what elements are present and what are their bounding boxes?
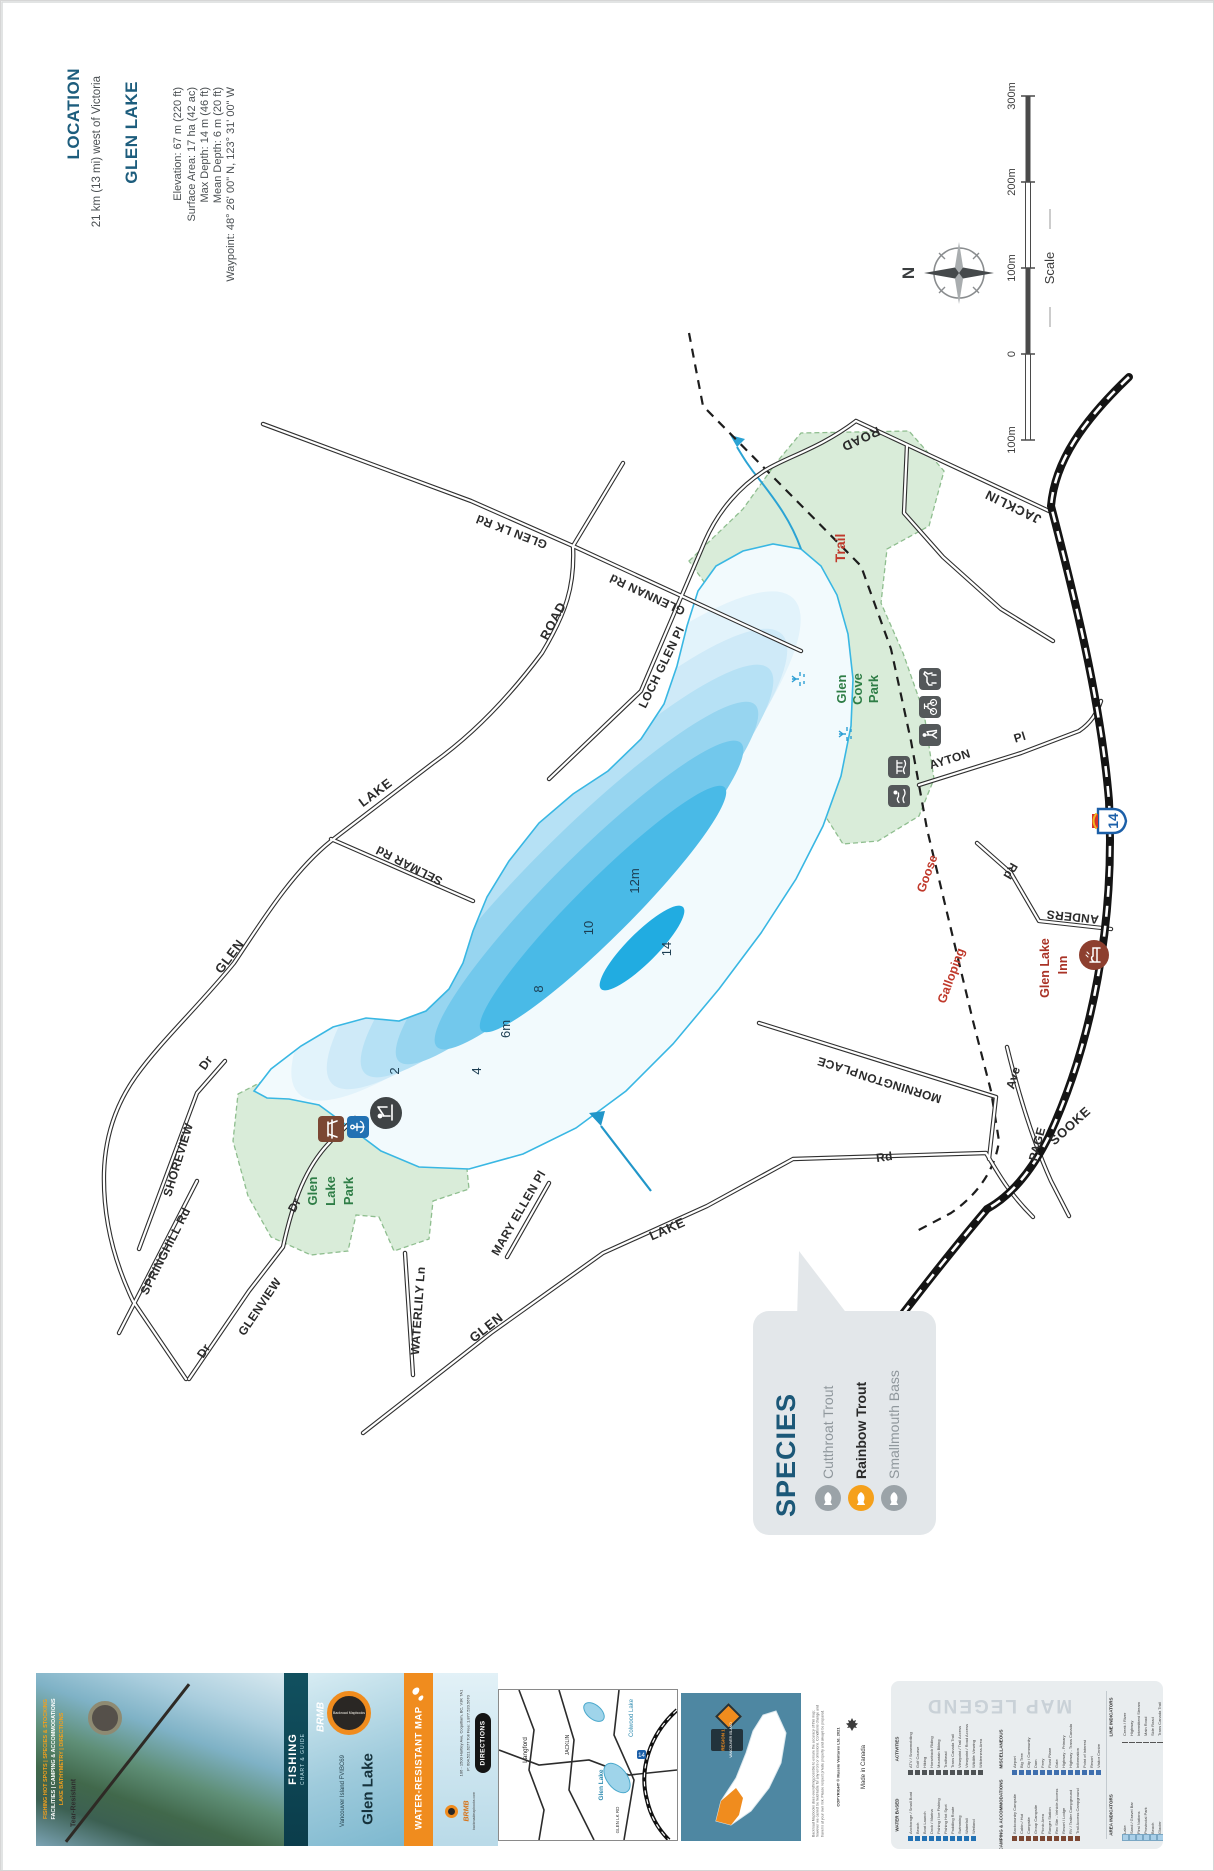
fishing-rod-image	[65, 1683, 190, 1842]
legend-camping-icon	[1047, 1836, 1052, 1841]
directions-tab: DIRECTIONS	[475, 1713, 491, 1773]
legend-item: Mountain Biking	[935, 1723, 942, 1775]
legend-activity-icon	[978, 1770, 983, 1775]
horseback-riding-icon	[919, 668, 941, 690]
legend-misc-icon	[1019, 1770, 1024, 1775]
species-cutthroat: Cutthroat Trout	[820, 1386, 836, 1479]
legend-camping-icon	[1033, 1836, 1038, 1841]
legend-item: Highway	[1128, 1691, 1135, 1743]
legend-misc-icon	[1033, 1770, 1038, 1775]
legend-item: Float Plane	[1046, 1723, 1053, 1775]
inset-colwood-label: Colwood Lake	[629, 1698, 635, 1737]
scale-100mb: 100m	[1006, 426, 1018, 454]
legend-item: Cabin / Hut	[1018, 1789, 1025, 1841]
legend-misc-icon	[1096, 1770, 1101, 1775]
glen-cove-park-label-1: Glen	[834, 674, 849, 703]
fishing-map-page: LOCATION 21 km (13 mi) west of Victoria …	[0, 0, 1214, 1871]
legend-item: Viewpoint / Road Access	[963, 1723, 970, 1775]
depth-14: 14	[659, 942, 674, 956]
legend-item: Swimming	[956, 1789, 963, 1841]
legend-item: Dock / Marina	[928, 1789, 935, 1841]
legend-activity-icon	[964, 1770, 969, 1775]
road-label-rd-s: Rd	[875, 1149, 893, 1165]
stat-elevation: Elevation: 67 m (220 ft)	[172, 87, 184, 201]
inset-glen-lake-label: Glen Lake	[598, 1769, 605, 1800]
legend-item: Hiking	[921, 1723, 928, 1775]
directions-inset-map: 14 Colwood Lake Langford Glen Lake JACKL…	[498, 1689, 678, 1841]
depth-4: 4	[469, 1067, 484, 1074]
road-label-selmar: SELMAR Rd	[374, 843, 445, 888]
legend-camping-icon	[1040, 1836, 1045, 1841]
inset-hwy-number: 14	[638, 1753, 645, 1759]
depth-6m: 6m	[498, 1020, 513, 1038]
legend-item: Resort	[1088, 1723, 1095, 1775]
water-drop-icon	[418, 1694, 425, 1701]
road-label-mary-ellen: MARY ELLEN Pl	[488, 1168, 548, 1258]
legend-item: RV / Trailer Campground	[1067, 1789, 1074, 1841]
legend-camping-icon	[1054, 1836, 1059, 1841]
legend-water-icon	[929, 1836, 934, 1841]
scale-0: 0	[1006, 351, 1018, 357]
maple-leaf-icon	[844, 1717, 860, 1733]
inflow-arrow	[589, 1111, 651, 1191]
legend-water-icon	[943, 1836, 948, 1841]
legend-water-icon	[971, 1836, 976, 1841]
map-legend-panel: MAP LEGEND ACTIVITIES ATV / Snowmobiling…	[891, 1681, 1163, 1849]
scale-bar: 300m 200m 100m 0 100m Scale	[1006, 82, 1057, 454]
legend-item: Airport	[1011, 1723, 1018, 1775]
info-panel: Backroad Mapbooks does everything possib…	[806, 1693, 889, 1841]
made-in-canada-label: Made in Canada	[861, 1745, 867, 1789]
cover-feature-line-2: FACILITIES | CAMPING & ACCOMMODATIONS	[51, 1698, 57, 1819]
road-label-shoreview: SHOREVIEW	[160, 1121, 196, 1198]
stat-waypoint: Waypoint: 48° 26' 00" N, 123° 31' 00" W	[225, 86, 237, 281]
legend-item: Wilderness Area	[977, 1723, 984, 1775]
title-panel: BRMB Backroad Mapbooks Vancouver Island …	[308, 1673, 404, 1846]
road-label-mornington: MORNINGTON	[857, 1068, 943, 1107]
legend-item: Ferry	[1039, 1723, 1046, 1775]
road-label-ayton-pl: Pl	[1012, 729, 1028, 746]
backroad-mapbooks-logo: Backroad Mapbooks	[327, 1691, 371, 1735]
legend-misc-icon	[1026, 1770, 1031, 1775]
legend-misc-icon	[1054, 1770, 1059, 1775]
series-fishing-label: FISHING	[287, 1733, 299, 1785]
legend-item: Intermittent Stream	[1135, 1691, 1142, 1743]
legend-item: Trans Canada Trail	[949, 1723, 956, 1775]
legend-activity-icon	[908, 1770, 913, 1775]
legend-activity-icon	[943, 1770, 948, 1775]
dock-icon	[888, 756, 910, 778]
legend-misc-icon	[1075, 1770, 1080, 1775]
legend-camping-icon	[1061, 1836, 1066, 1841]
hiking-icon	[919, 724, 941, 746]
contact-panel: 106 - 1500 Hartley Ave, Coquitlam, BC, V…	[433, 1673, 498, 1846]
road-label-road-w: ROAD	[537, 599, 569, 642]
scale-200m: 200m	[1006, 168, 1018, 196]
compass-north-label: N	[899, 267, 918, 279]
legend-item: Side Road	[1149, 1691, 1156, 1743]
legend-item: City / Community	[1025, 1723, 1032, 1775]
legend-item: Provincial Park	[1142, 1789, 1149, 1841]
legend-item: Group Campsite	[1032, 1789, 1039, 1841]
legend-misc-icon	[1012, 1770, 1017, 1775]
glen-lake-park-label-3: Park	[341, 1176, 356, 1205]
legend-water-icon	[915, 1836, 920, 1841]
shore-fishing-icon	[370, 1097, 402, 1129]
legend-water-icon	[908, 1836, 913, 1841]
legend-misc-icon	[1061, 1770, 1066, 1775]
legend-item: Golf Course	[914, 1723, 921, 1775]
legend-activity-icon	[957, 1770, 962, 1775]
legend-item: Main Road	[1142, 1691, 1149, 1743]
scale-label: Scale	[1042, 252, 1057, 285]
brmb-website: backroadmapbooks.com	[472, 1792, 476, 1830]
legend-item: Sand / Gravel Bar	[1128, 1789, 1135, 1841]
legend-item: Gate	[1053, 1723, 1060, 1775]
location-title: LOCATION	[64, 68, 83, 160]
mountain-biking-icon	[919, 696, 941, 718]
road-label-mornington-place: PLACE	[816, 1054, 860, 1080]
depth-2: 2	[387, 1067, 402, 1074]
legend-section-activities: ACTIVITIES ATV / SnowmobilingGolf Course…	[899, 1723, 984, 1775]
series-band-panel: FISHING CHART & GUIDE	[284, 1673, 308, 1846]
publisher-address: 106 - 1500 Hartley Ave, Coquitlam, BC, V…	[459, 1690, 464, 1777]
glen-lake-inn-label-2: Inn	[1056, 956, 1070, 975]
publisher-phone: P: 604.521.6277 Toll Free: 1.877.520.567…	[466, 1695, 471, 1771]
species-title: SPECIES	[771, 1393, 801, 1517]
fishing-reel-image	[88, 1701, 122, 1735]
legend-item: Anchorage / Small Boat	[907, 1789, 914, 1841]
legend-item: Beach	[1149, 1789, 1156, 1841]
legend-item: Boat Launch	[921, 1789, 928, 1841]
legend-section-areas: AREA INDICATORS LakeSand / Gravel BarFir…	[1113, 1789, 1163, 1841]
brmb-wordmark: BRMB	[316, 1702, 327, 1732]
legend-water-icon	[922, 1836, 927, 1841]
legend-section-lines: LINE INDICATORS Creek / RiverHighwayInte…	[1113, 1691, 1163, 1743]
legend-item: Trans Canada Trail	[1156, 1691, 1163, 1743]
legend-activity-icon	[971, 1770, 976, 1775]
legend-activity-icon	[915, 1770, 920, 1775]
scale-300m: 300m	[1006, 82, 1018, 110]
legend-item: Paddling Route	[949, 1789, 956, 1841]
stat-surface: Surface Area: 17 ha (42 ac)	[186, 87, 198, 222]
brmb-weblogo-text: BRMB	[464, 1801, 471, 1822]
legend-item: Campsite	[1025, 1789, 1032, 1841]
lake-title: GLEN LAKE	[122, 81, 141, 184]
legend-water-icon	[964, 1836, 969, 1841]
legend-activity-icon	[950, 1770, 955, 1775]
legend-item: Highway - Trans Canada	[1067, 1723, 1074, 1775]
legend-section-water: WATER BASED Anchorage / Small BoatBeachB…	[899, 1789, 977, 1841]
legend-item: Highway - Primary	[1060, 1723, 1067, 1775]
legend-item: Glacier	[1156, 1789, 1163, 1841]
highway-14-number: 14	[1105, 813, 1121, 829]
road-label-waterlily: WATERLILY Ln	[408, 1266, 428, 1355]
compass-rose: N	[899, 242, 994, 304]
legend-item: Lake	[1121, 1789, 1128, 1841]
depth-12m: 12m	[627, 868, 642, 893]
legend-item: Information	[1074, 1723, 1081, 1775]
swimming-icon	[888, 785, 910, 807]
legend-misc-icon	[1068, 1770, 1073, 1775]
disclaimer-text: Backroad Mapbooks does everything possib…	[811, 1697, 824, 1837]
glen-lake-map: LOCATION 21 km (13 mi) west of Victoria …	[1, 1, 1214, 1871]
glen-lake-park-label-2: Lake	[323, 1176, 338, 1206]
legend-water-icon	[957, 1836, 962, 1841]
inset-jacklin-label: JACKLIN	[565, 1734, 571, 1755]
species-rainbow: Rainbow Trout	[853, 1381, 869, 1479]
inset-langford-label: Langford	[522, 1737, 529, 1763]
legend-item: Resort / Lodge	[1060, 1789, 1067, 1841]
stat-max-depth: Max Depth: 14 m (46 ft)	[199, 87, 211, 203]
road-label-lake-s: LAKE	[647, 1214, 688, 1243]
legend-water-icon	[936, 1836, 941, 1841]
legend-section-misc: MISCELLANEOUS AirportBig TreeCity / Comm…	[1003, 1723, 1102, 1775]
legend-misc-icon	[1089, 1770, 1094, 1775]
legend-activity-icon	[936, 1770, 941, 1775]
cover-photo-panel: FISHING HOT SPOTS | SPECIES & STOCKING F…	[36, 1673, 284, 1846]
map-subtitle: Vancouver Island FVIBC69	[340, 1755, 346, 1827]
legend-camping-icon	[1012, 1836, 1017, 1841]
legend-misc-icon	[1082, 1770, 1087, 1775]
legend-item: ATV / Snowmobiling	[907, 1723, 914, 1775]
road-label-page-ave: Ave	[1003, 1065, 1023, 1091]
water-resistant-banner: WATER-RESISTANT MAP	[404, 1673, 433, 1846]
region-panel: REGION 1 VANCOUVER ISLAND	[681, 1693, 801, 1841]
map-title: Glen Lake	[360, 1753, 377, 1825]
legend-camping-icon	[1068, 1836, 1073, 1841]
legend-item: Visitor Centre	[1095, 1723, 1102, 1775]
legend-item: Rec Site - Vehicle Access	[1053, 1789, 1060, 1841]
glen-lake-inn-label-1: Glen Lake	[1038, 938, 1052, 998]
highway-14-shield-icon: 14	[1092, 809, 1126, 833]
location-value: 21 km (13 mi) west of Victoria	[91, 75, 103, 227]
cover-feature-line-3: LAKE BATHYMETRY | DIRECTIONS	[59, 1713, 65, 1806]
tear-resistant-label: Tear-Resistant	[71, 1779, 78, 1827]
stat-mean-depth: Mean Depth: 6 m (20 ft)	[212, 87, 224, 203]
legend-misc-icon	[1040, 1770, 1045, 1775]
trail-label: Trail	[832, 534, 848, 563]
road-label-springhill: SPRINGHILL Rd	[137, 1205, 193, 1297]
legend-item: Ranger Station	[1046, 1789, 1053, 1841]
cover-feature-line-1: FISHING HOT SPOTS | SPECIES & STOCKING	[43, 1699, 49, 1819]
series-sub-label: CHART & GUIDE	[300, 1733, 306, 1785]
glen-cove-park-label-3: Park	[866, 674, 881, 703]
glen-lake-park-label-1: Glen	[305, 1176, 320, 1205]
legend-item: Backcountry Campsite	[1011, 1789, 1018, 1841]
legend-activity-icon	[929, 1770, 934, 1775]
glen-lake-inn-icon	[1079, 940, 1109, 970]
scale-100m: 100m	[1006, 254, 1018, 282]
depth-10: 10	[581, 921, 596, 935]
inset-glen-lk-rd-label: GLEN LK RD	[615, 1806, 620, 1834]
depth-8: 8	[531, 985, 546, 992]
legend-section-camping: CAMPING & ACCOMMODATIONS Backcountry Cam…	[1003, 1789, 1081, 1841]
legend-item: Trail Access Campground	[1074, 1789, 1081, 1841]
species-smallmouth: Smallmouth Bass	[886, 1370, 902, 1479]
region-badge-banner: REGION 1 VANCOUVER ISLAND	[711, 1729, 743, 1751]
legend-item: Point of Interest	[1081, 1723, 1088, 1775]
legend-camping-icon	[1075, 1836, 1080, 1841]
legend-item: Viewpoint / Trail Access	[956, 1723, 963, 1775]
legend-item: Big Tree	[1018, 1723, 1025, 1775]
goose-label: Goose	[914, 853, 940, 894]
species-callout: SPECIES Cutthroat Trout Rainbow Trout Sm…	[753, 1251, 936, 1535]
road-label-glenview: GLENVIEW	[235, 1275, 284, 1338]
legend-item: Horseback Riding	[928, 1723, 935, 1775]
picnic-icon	[318, 1116, 344, 1142]
legend-item: Wildlife Viewing	[970, 1723, 977, 1775]
legend-item: Dam	[1032, 1723, 1039, 1775]
legend-item: Fishing / Ice Fishing	[935, 1789, 942, 1841]
legend-item: Beach	[914, 1789, 921, 1841]
legend-item: Picnic Area	[1039, 1789, 1046, 1841]
legend-item: First Nations	[1135, 1789, 1142, 1841]
road-label-shoreview-dr: Dr	[196, 1053, 215, 1072]
brmb-mini-logo	[445, 1805, 458, 1818]
legend-title: MAP LEGEND	[926, 1694, 1072, 1716]
legend-camping-icon	[1019, 1836, 1024, 1841]
location-header: LOCATION 21 km (13 mi) west of Victoria …	[64, 68, 237, 282]
legend-item: Waterfall	[963, 1789, 970, 1841]
legend-activity-icon	[922, 1770, 927, 1775]
legend-item: Wetland	[970, 1789, 977, 1841]
legend-camping-icon	[1026, 1836, 1031, 1841]
water-drop-icon	[411, 1686, 421, 1696]
copyright-text: COPYRIGHT © Mussio Ventures Ltd. 2021	[836, 1727, 841, 1806]
legend-item: Trailhead	[942, 1723, 949, 1775]
legend-item: Creek / River	[1121, 1691, 1128, 1743]
legend-water-icon	[950, 1836, 955, 1841]
legend-item: Fishing Hot Spot	[942, 1789, 949, 1841]
legend-misc-icon	[1047, 1770, 1052, 1775]
boat-launch-anchor-icon	[347, 1116, 369, 1138]
water-resistant-label: WATER-RESISTANT MAP	[414, 1706, 425, 1829]
glen-cove-park-label-2: Cove	[850, 673, 865, 705]
legend-divider	[1106, 1691, 1107, 1839]
